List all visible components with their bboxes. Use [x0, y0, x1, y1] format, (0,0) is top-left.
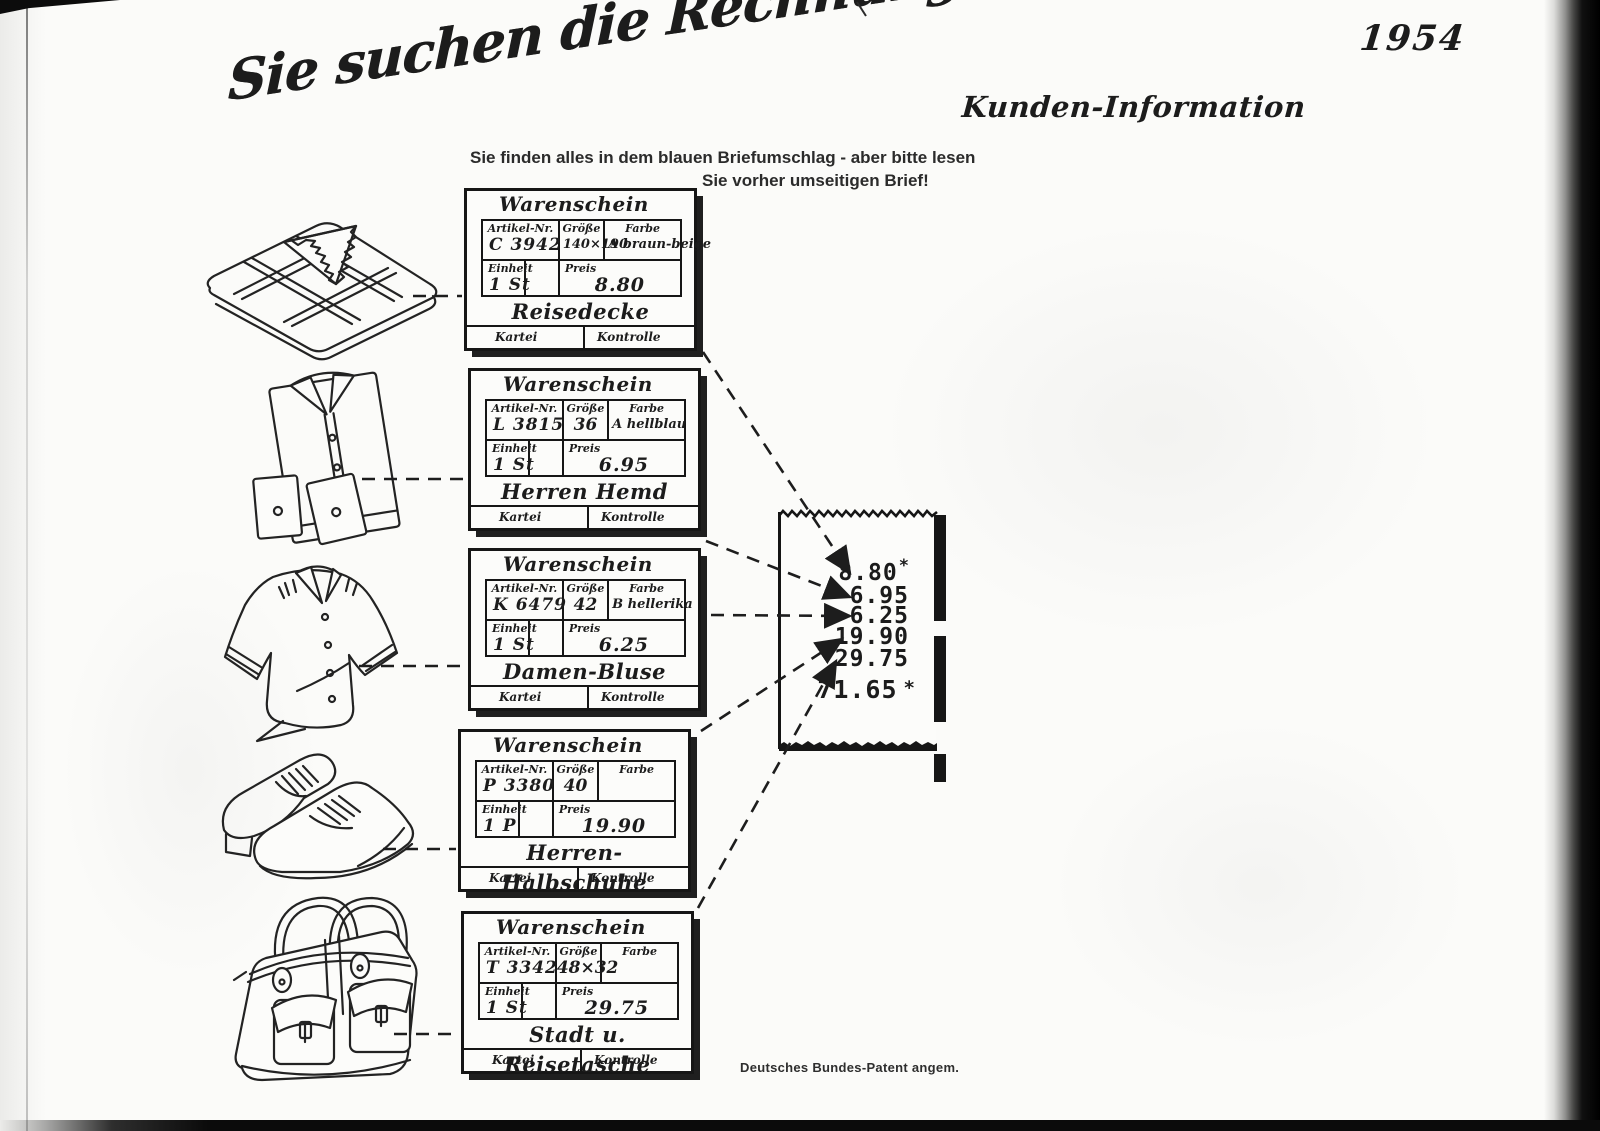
warenschein-grid: Artikel-Nr.P 3380 Größe40 Farbe Einheit1… [475, 760, 676, 838]
farbe-label: Farbe [609, 581, 684, 595]
damenbluse-illustration [193, 543, 418, 743]
einheit-value: 1 St [483, 275, 524, 295]
scan-smudge [1050, 720, 1470, 1050]
receipt-shadow-bar [934, 515, 946, 621]
groesse-value: 40 [554, 776, 597, 796]
receipt-total: 71.65* [817, 678, 916, 704]
reisetasche-illustration [212, 870, 447, 1095]
halbschuhe-illustration [210, 732, 435, 882]
warenschein-card-reisedecke: Warenschein Artikel-Nr.C 3942 Größe140×1… [464, 188, 697, 351]
warenschein-grid: Artikel-Nr.L 3815 Größe36 FarbeA hellbla… [485, 399, 686, 477]
farbe-label: Farbe [609, 401, 684, 415]
intro-line-1: Sie finden alles in dem blauen Briefumsc… [470, 146, 975, 169]
book-gutter-shading [0, 0, 46, 1131]
reisedecke-illustration [188, 196, 453, 366]
warenschein-title: Warenschein [499, 191, 649, 218]
year-label: 1954 [1358, 18, 1468, 59]
asterisk-mark: * [899, 556, 910, 576]
warenschein-title: Warenschein [493, 732, 643, 759]
einheit-label: Einheit [477, 802, 518, 816]
kontrolle-label: Kontrolle [589, 687, 698, 708]
warenschein-card-damenbluse: Warenschein Artikel-Nr.K 6479 Größe42 Fa… [468, 548, 701, 711]
patent-note: Deutsches Bundes-Patent angem. [740, 1060, 959, 1075]
einheit-value: 1 St [487, 455, 528, 475]
preis-value: 6.25 [564, 635, 684, 655]
groesse-label: Größe [564, 401, 607, 415]
preis-value: 6.95 [564, 455, 684, 475]
product-name: Reisedecke [467, 297, 694, 327]
groesse-label: Größe [557, 944, 600, 958]
artikel-label: Artikel-Nr. [487, 581, 562, 595]
herrenhemd-illustration [232, 350, 437, 555]
artikel-label: Artikel-Nr. [487, 401, 562, 415]
scan-smudge [880, 220, 1440, 640]
warenschein-card-herrenhemd: Warenschein Artikel-Nr.L 3815 Größe36 Fa… [468, 368, 701, 531]
book-page-edge [1544, 0, 1600, 1131]
kartei-label: Kartei [461, 868, 579, 889]
artikel-value: T 3342 [480, 958, 555, 978]
farbe-label: Farbe [605, 221, 680, 235]
einheit-label: Einheit [487, 621, 528, 635]
artikel-value: K 6479 [487, 595, 562, 615]
preis-label: Preis [564, 441, 684, 455]
groesse-value: 140×190 [560, 235, 603, 255]
product-name: Herren Hemd [471, 477, 698, 507]
groesse-label: Größe [560, 221, 603, 235]
artikel-value: C 3942 [483, 235, 558, 255]
warenschein-title: Warenschein [496, 914, 646, 941]
artikel-label: Artikel-Nr. [483, 221, 558, 235]
farbe-value: A braun-beige [605, 235, 680, 255]
intro-line-2: Sie vorher umseitigen Brief! [702, 169, 975, 192]
farbe-value: A hellblau [609, 415, 684, 435]
kontrolle-label: Kontrolle [579, 868, 688, 889]
groesse-label: Größe [564, 581, 607, 595]
preis-label: Preis [560, 261, 680, 275]
groesse-value: 36 [564, 415, 607, 435]
scanned-catalog-page: Sie suchen die Rechnung ? 1954 Kunden-In… [0, 0, 1600, 1131]
preis-value: 8.80 [560, 275, 680, 295]
artikel-label: Artikel-Nr. [480, 944, 555, 958]
warenschein-card-reisetasche: Warenschein Artikel-Nr.T 3342 Größe48×32… [461, 911, 694, 1074]
kontrolle-label: Kontrolle [582, 1050, 691, 1071]
einheit-label: Einheit [487, 441, 528, 455]
artikel-label: Artikel-Nr. [477, 762, 552, 776]
receipt-slip: 8.80* 6.95 6.25 19.90 29.75 71.65* [778, 512, 936, 749]
receipt-shadow-bar [934, 636, 946, 722]
preis-value: 29.75 [557, 998, 677, 1018]
intro-text: Sie finden alles in dem blauen Briefumsc… [470, 146, 975, 192]
kartei-label: Kartei [464, 1050, 582, 1071]
warenschein-grid: Artikel-Nr.C 3942 Größe140×190 FarbeA br… [481, 219, 682, 297]
warenschein-title: Warenschein [503, 371, 653, 398]
einheit-label: Einheit [480, 984, 521, 998]
receipt-line-5: 29.75 [835, 648, 910, 672]
groesse-value: 42 [564, 595, 607, 615]
warenschein-card-halbschuhe: Warenschein Artikel-Nr.P 3380 Größe40 Fa… [458, 729, 691, 892]
kartei-label: Kartei [467, 327, 585, 348]
warenschein-grid: Artikel-Nr.T 3342 Größe48×32 Farbe Einhe… [478, 942, 679, 1020]
farbe-label: Farbe [602, 944, 677, 958]
preis-label: Preis [564, 621, 684, 635]
preis-label: Preis [554, 802, 674, 816]
einheit-value: 1 St [487, 635, 528, 655]
receipt-torn-bottom-edge [779, 741, 939, 751]
groesse-label: Größe [554, 762, 597, 776]
groesse-value: 48×32 [557, 958, 600, 978]
farbe-label: Farbe [599, 762, 674, 776]
artikel-value: P 3380 [477, 776, 552, 796]
receipt-shadow-bar-stub [934, 754, 946, 782]
preis-value: 19.90 [554, 816, 674, 836]
product-name: Damen-Bluse [471, 657, 698, 687]
scan-bottom-edge [0, 1120, 1600, 1131]
kartei-label: Kartei [471, 687, 589, 708]
einheit-value: 1 St [480, 998, 521, 1018]
warenschein-title: Warenschein [503, 551, 653, 578]
kartei-label: Kartei [471, 507, 589, 528]
kontrolle-label: Kontrolle [589, 507, 698, 528]
farbe-value: B hellerika [609, 595, 684, 615]
artikel-value: L 3815 [487, 415, 562, 435]
kunden-information-label: Kunden-Information [961, 90, 1307, 124]
asterisk-mark: * [904, 677, 916, 699]
einheit-label: Einheit [483, 261, 524, 275]
preis-label: Preis [557, 984, 677, 998]
receipt-torn-top-edge [779, 509, 939, 519]
einheit-value: 1 P [477, 816, 518, 836]
kontrolle-label: Kontrolle [585, 327, 694, 348]
book-gutter-line [26, 0, 28, 1131]
page-title-script: Sie suchen die Rechnung ? [227, 0, 1010, 108]
warenschein-grid: Artikel-Nr.K 6479 Größe42 FarbeB helleri… [485, 579, 686, 657]
